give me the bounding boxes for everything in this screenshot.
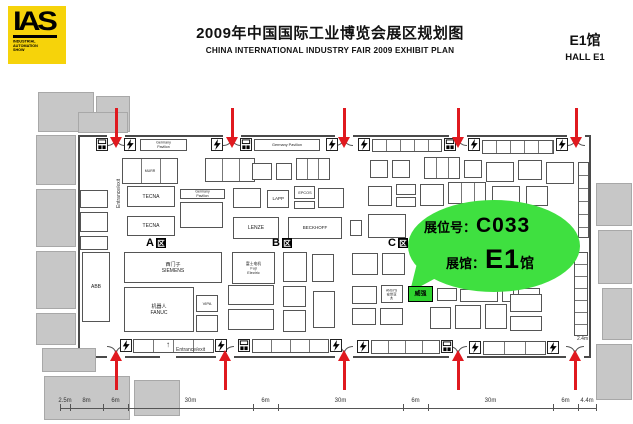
booth <box>464 160 482 178</box>
zone-marker-c: C区 <box>388 237 408 249</box>
booth <box>312 254 334 282</box>
booth <box>578 162 589 238</box>
booth: LENZE <box>233 217 279 239</box>
booth <box>368 214 406 238</box>
building-block <box>42 348 96 372</box>
booth <box>283 286 306 307</box>
dimension-line <box>60 408 596 409</box>
building-block <box>36 313 76 345</box>
booth: Germany Pavilion <box>140 139 187 151</box>
booth <box>396 184 416 195</box>
callout-hall-line: 展馆： E1 馆 <box>446 244 534 275</box>
dimension-tick <box>128 404 129 411</box>
title-english: CHINA INTERNATIONAL INDUSTRY FAIR 2009 E… <box>140 46 520 55</box>
arrow-down-icon <box>226 137 238 148</box>
booth: TECNA <box>127 186 175 207</box>
lightning-icon <box>124 138 136 151</box>
hall-label-english: HALL E1 <box>545 52 625 63</box>
lightning-icon <box>469 341 481 354</box>
booth-label: LAPP <box>272 196 284 201</box>
booth: Germany Pavilion <box>254 139 320 151</box>
arrow-down-icon <box>570 137 582 148</box>
booth <box>80 212 108 232</box>
booth <box>233 188 261 208</box>
booth-label: ABB <box>88 284 104 290</box>
dimension-label: 2.5m <box>58 398 71 404</box>
booth <box>80 236 108 250</box>
booth-label: TECNA <box>137 223 166 229</box>
booth-label: Germany Pavilion <box>193 190 212 198</box>
arrow-down-icon <box>452 137 464 148</box>
dimension-tick <box>70 404 71 411</box>
building-block <box>36 251 76 309</box>
dimension-tick <box>596 404 597 411</box>
booth <box>396 197 416 207</box>
booth-label: 西门子 SIEMENS <box>143 262 203 274</box>
arrow-up-icon <box>452 350 464 361</box>
dimension-label: 30m <box>185 398 197 404</box>
arrow-down-icon <box>231 108 234 138</box>
lightning-icon <box>468 138 480 151</box>
booth <box>482 140 554 154</box>
booth <box>518 160 542 180</box>
booth-label: EPCOS <box>298 190 311 195</box>
dimension-label: 30m <box>485 398 497 404</box>
dimension-label: 30m <box>335 398 347 404</box>
booth: 西门子 SIEMENS <box>124 252 222 283</box>
entrance-arrow <box>338 108 350 148</box>
booth <box>283 252 307 282</box>
hall-label-chinese: E1馆 <box>545 30 625 50</box>
arrow-down-icon <box>110 137 122 148</box>
booth <box>352 253 378 275</box>
arrow-down-icon <box>338 137 350 148</box>
building-block <box>598 230 632 284</box>
zone-marker-text: B <box>272 237 280 249</box>
power-meter-icon <box>96 138 108 151</box>
dimension-tick <box>428 404 429 411</box>
dimension-label: 8m <box>82 398 90 404</box>
booth: Germany Pavilion <box>180 189 225 199</box>
dimension-label: 6m <box>111 398 119 404</box>
booth-label: ANSYS 安世亚太 <box>386 288 397 300</box>
arrow-up-icon <box>224 360 227 390</box>
lightning-icon <box>556 138 568 151</box>
arrow-down-icon <box>457 108 460 138</box>
building-block <box>596 183 632 226</box>
dimension-tick <box>403 404 404 411</box>
arrow-up-icon <box>569 350 581 361</box>
booth-label: LENZE <box>242 225 270 231</box>
booth <box>352 286 377 304</box>
booth <box>371 340 440 354</box>
entrance-arrow <box>452 108 464 148</box>
booth-label: VIPA <box>202 301 212 306</box>
booth: EPCOS <box>294 186 315 199</box>
arrow-up-icon <box>574 360 577 390</box>
title-chinese: 2009年中国国际工业博览会展区规划图 <box>140 22 520 43</box>
entrance-arrow <box>110 108 122 148</box>
booth: BECKHOFF <box>288 217 342 239</box>
lightning-icon <box>326 138 338 151</box>
booth-label: 机器人 FANUC <box>138 304 181 316</box>
zone-marker-text: 区 <box>282 238 292 248</box>
arrow-down-icon <box>575 108 578 138</box>
booth <box>228 309 274 330</box>
dimension-tick <box>60 404 61 411</box>
booth-label: Germany Pavilion <box>153 141 173 150</box>
ias-logo-subtext: INDUSTRIAL AUTOMATION SHOW <box>13 40 66 53</box>
booth: ABB <box>82 252 110 322</box>
entrance-arrow <box>338 350 350 390</box>
entrance-arrow <box>570 108 582 148</box>
zone-marker-text: C <box>388 237 396 249</box>
building-block <box>596 344 632 400</box>
hall-number-label: 展馆： <box>446 253 485 272</box>
entrance-arrow <box>569 350 581 390</box>
side-exit-label: Entrance/exit <box>116 179 122 208</box>
booth-label: 威强 <box>412 290 429 297</box>
dimension-label: 6m <box>411 398 419 404</box>
booth: 威强 <box>408 286 433 302</box>
right-dimension-label: 2.4m <box>577 336 588 342</box>
hall-number-value: E1 <box>485 244 520 275</box>
booth <box>283 310 306 332</box>
lightning-icon <box>211 138 223 151</box>
dimension-tick <box>578 404 579 411</box>
booth <box>430 307 451 329</box>
building-block <box>36 135 76 185</box>
arrow-up-icon <box>343 360 346 390</box>
dimension-tick <box>103 404 104 411</box>
booth <box>483 341 546 355</box>
hall-number-suffix: 馆 <box>520 253 534 273</box>
entrance-arrow <box>219 350 231 390</box>
entrance-arrow <box>452 350 464 390</box>
booth: LAPP <box>267 190 289 208</box>
booth <box>526 186 548 206</box>
booth <box>318 188 344 208</box>
power-meter-icon <box>238 339 250 352</box>
page-title: 2009年中国国际工业博览会展区规划图 CHINA INTERNATIONAL … <box>140 22 520 55</box>
booth-label: TECNA <box>137 194 166 200</box>
power-meter-icon <box>240 138 252 151</box>
zone-marker-b: B区 <box>272 237 292 249</box>
booth <box>368 186 392 206</box>
arrow-down-icon <box>115 108 118 138</box>
booth-number-value: C033 <box>476 214 530 238</box>
booth <box>420 184 444 206</box>
booth: VIPA <box>196 295 218 312</box>
booth <box>392 160 410 178</box>
booth <box>424 157 460 179</box>
ias-logo: IAS INDUSTRIAL AUTOMATION SHOW <box>8 6 66 64</box>
booth <box>455 305 481 329</box>
booth <box>252 163 272 180</box>
lightning-icon <box>357 340 369 353</box>
booth: ANSYS 安世亚太 <box>381 285 403 303</box>
lightning-icon <box>547 341 559 354</box>
booth: 机器人 FANUC <box>124 287 194 332</box>
arrow-up-icon <box>338 350 350 361</box>
booth-label: 富士电机 Fuji Electric <box>244 261 263 275</box>
ias-logo-text: IAS <box>13 8 74 34</box>
booth-label: BECKHOFF <box>300 225 329 230</box>
booth-label: MURR <box>138 169 162 173</box>
arrow-down-icon <box>343 108 346 138</box>
arrow-up-icon <box>115 360 118 390</box>
building-block <box>134 380 180 416</box>
arrow-up-icon <box>219 350 231 361</box>
booth <box>486 162 514 182</box>
entrance-arrow <box>110 350 122 390</box>
entrance-exit-label: Entrance/exit <box>176 347 205 353</box>
booth <box>313 291 335 328</box>
zone-marker-text: 区 <box>156 238 166 248</box>
booth <box>296 158 330 180</box>
entrance-arrow <box>226 108 238 148</box>
building-block <box>602 288 632 340</box>
dimension-tick <box>553 404 554 411</box>
booth: TECNA <box>127 216 175 236</box>
booth <box>485 304 507 329</box>
exhibit-plan-page: IAS INDUSTRIAL AUTOMATION SHOW 2009年中国国际… <box>0 0 633 424</box>
booth <box>380 308 403 325</box>
booth <box>294 201 315 209</box>
arrow-up-icon <box>457 360 460 390</box>
booth-label: Germany Pavilion <box>272 143 302 148</box>
booth <box>352 308 376 325</box>
arrow-up-icon <box>110 350 122 361</box>
dimension-tick <box>278 404 279 411</box>
building-block <box>36 189 76 247</box>
booth-number-label: 展位号： <box>424 217 476 236</box>
up-arrow-glyph: ↑ <box>166 340 170 349</box>
booth <box>252 339 329 353</box>
bottom-entrance-gap <box>160 353 176 359</box>
lightning-icon <box>358 138 370 151</box>
zone-marker-text: 区 <box>398 238 408 248</box>
dimension-label: 4.4m <box>580 398 593 404</box>
booth <box>370 160 388 178</box>
booth <box>510 294 542 312</box>
booth <box>510 316 542 331</box>
booth <box>546 162 574 184</box>
callout-booth-line: 展位号： C033 <box>424 214 530 238</box>
booth <box>276 163 292 180</box>
zone-marker-a: A区 <box>146 237 166 249</box>
booth <box>80 190 108 208</box>
booth <box>350 220 362 236</box>
dimension-tick <box>253 404 254 411</box>
booth <box>372 139 442 152</box>
dimension-label: 6m <box>561 398 569 404</box>
dimension-label: 6m <box>261 398 269 404</box>
booth: MURR <box>122 158 178 184</box>
booth <box>228 285 274 305</box>
booth <box>574 252 588 336</box>
booth: 富士电机 Fuji Electric <box>232 252 275 284</box>
booth <box>196 315 218 332</box>
hall-label: E1馆 HALL E1 <box>545 30 625 63</box>
booth <box>180 202 223 228</box>
zone-marker-text: A <box>146 237 154 249</box>
booth <box>205 158 255 182</box>
booth <box>382 253 405 275</box>
